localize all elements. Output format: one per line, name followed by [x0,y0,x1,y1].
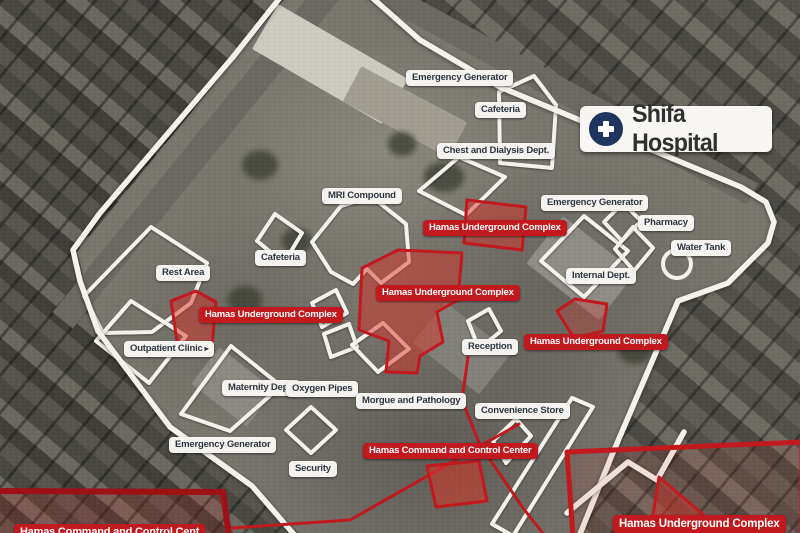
hospital-badge: Shifa Hospital [580,106,772,152]
map-label-security: Security [289,461,337,477]
map-label-hamas-underground-right: Hamas Underground Complex [524,334,668,350]
annotated-satellite-map: Emergency GeneratorCafeteriaChest and Di… [0,0,800,533]
map-label-hamas-underground-bottomright: Hamas Underground Complex [613,515,786,533]
map-label-cafeteria-top: Cafeteria [475,102,526,118]
map-label-internal-dept: Internal Dept. [566,268,636,284]
zone-underground-central [359,250,462,373]
security-building [286,407,336,453]
map-label-emergency-generator-right: Emergency Generator [541,195,648,211]
map-label-reception: Reception [462,339,518,355]
map-label-emergency-generator-top: Emergency Generator [406,70,513,86]
map-label-pharmacy: Pharmacy [638,215,694,231]
map-label-cafeteria-2: Cafeteria [255,250,306,266]
map-label-hamas-underground-central: Hamas Underground Complex [376,285,520,301]
map-label-hamas-command-bottomleft: Hamas Command and Control Cent [14,524,205,533]
map-label-water-tank: Water Tank [671,240,731,256]
map-label-rest-area: Rest Area [156,265,210,281]
map-label-mri-compound: MRI Compound [322,188,402,204]
map-label-outpatient-clinic: Outpatient Clinic▸ [124,341,214,357]
zone-underground-right [557,299,607,338]
oxygen-structure-2 [324,324,357,357]
pharmacy-building [615,227,653,271]
map-label-hamas-underground-top: Hamas Underground Complex [423,220,567,236]
map-label-emergency-generator-bottom: Emergency Generator [169,437,276,453]
map-label-hamas-underground-left: Hamas Underground Complex [199,307,343,323]
page-title: Shifa Hospital [632,100,762,158]
map-label-chest-dialysis-dept: Chest and Dialysis Dept. [437,143,555,159]
map-label-hamas-command-center: Hamas Command and Control Center [363,443,538,459]
map-label-morgue-pathology: Morgue and Pathology [356,393,466,409]
hospital-cross-icon [589,112,623,146]
map-label-oxygen-pipes: Oxygen Pipes [286,381,358,397]
map-label-convenience-store: Convenience Store [475,403,570,419]
pointer-arrow-icon: ▸ [205,344,209,353]
zone-command-area [427,461,487,507]
